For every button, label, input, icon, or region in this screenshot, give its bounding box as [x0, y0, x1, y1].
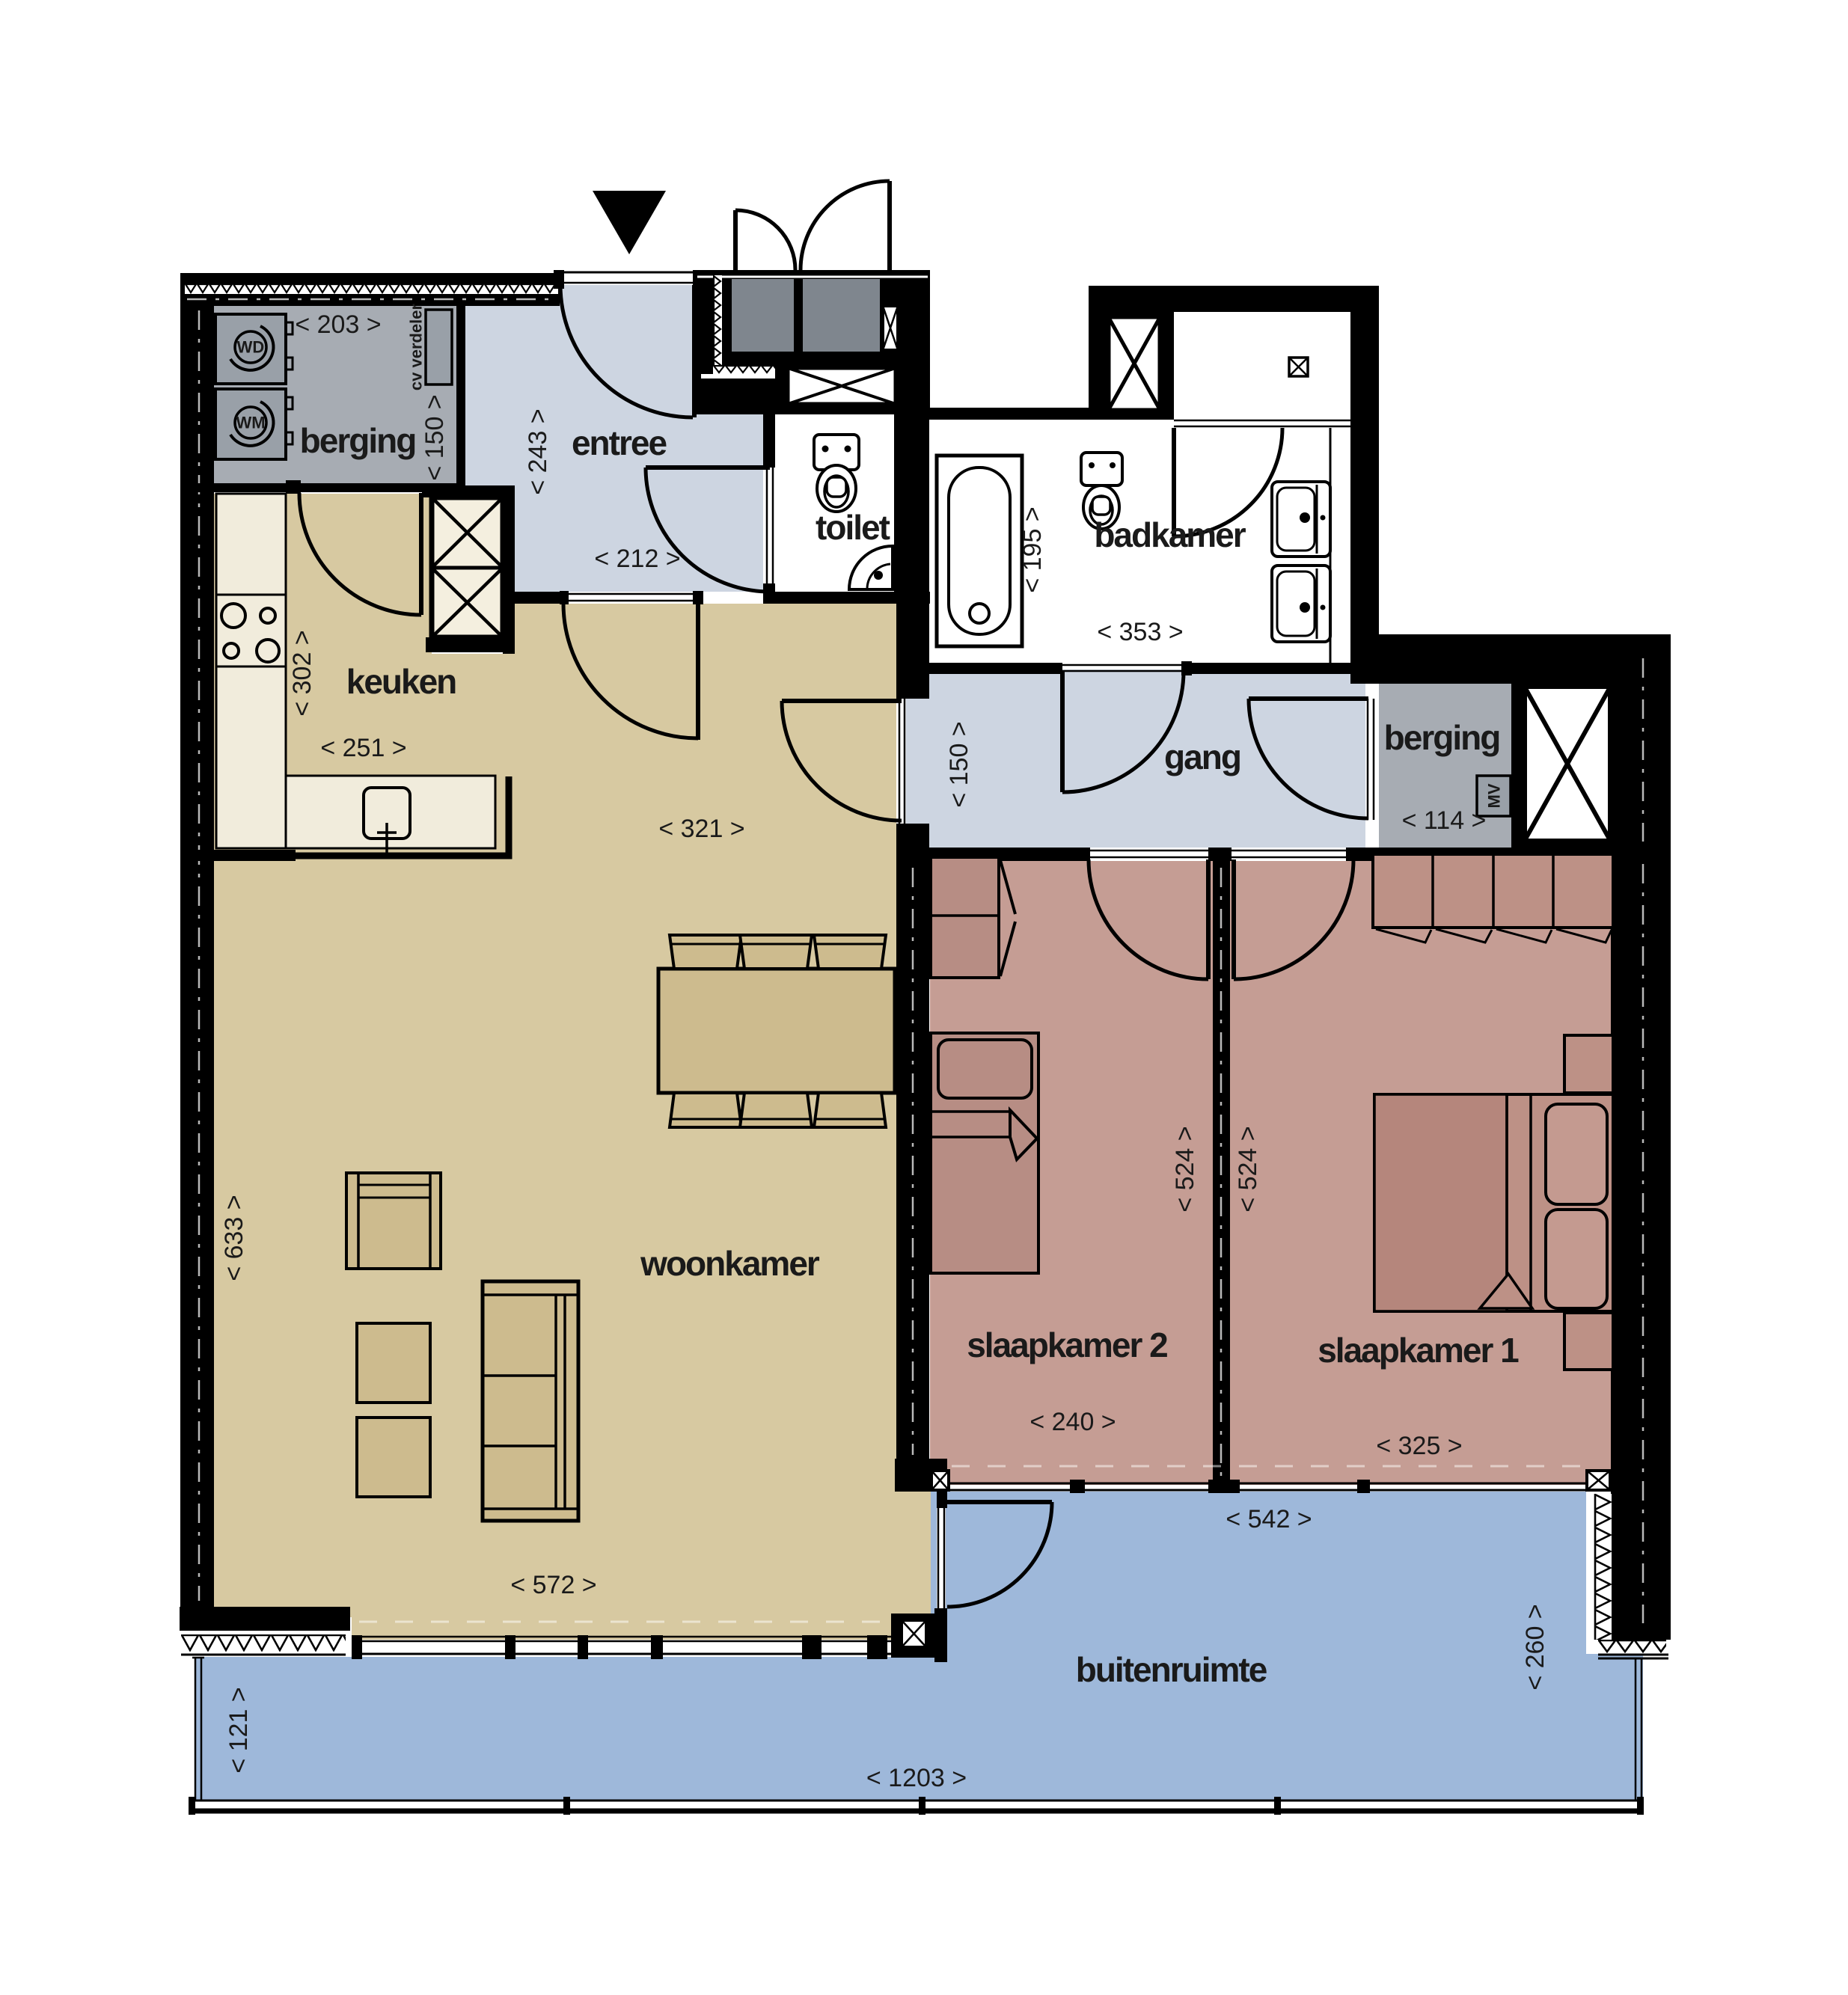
- svg-text:buitenruimte: buitenruimte: [1076, 1650, 1267, 1689]
- svg-text:< 203 >: < 203 >: [295, 310, 381, 339]
- svg-text:woonkamer: woonkamer: [640, 1244, 820, 1283]
- svg-text:entree: entree: [572, 423, 667, 462]
- svg-text:< 633 >: < 633 >: [220, 1195, 248, 1281]
- svg-text:< 195 >: < 195 >: [1018, 506, 1047, 592]
- svg-text:WD: WD: [237, 338, 265, 357]
- svg-text:berging: berging: [1384, 718, 1500, 757]
- svg-text:slaapkamer 2: slaapkamer 2: [967, 1326, 1167, 1364]
- svg-text:WM: WM: [236, 414, 265, 432]
- svg-text:< 321 >: < 321 >: [658, 815, 744, 843]
- svg-text:< 302 >: < 302 >: [288, 630, 316, 716]
- svg-text:< 353 >: < 353 >: [1097, 618, 1183, 646]
- svg-text:< 212 >: < 212 >: [594, 545, 680, 573]
- svg-text:< 572 >: < 572 >: [510, 1571, 596, 1599]
- svg-text:keuken: keuken: [346, 662, 456, 701]
- svg-text:slaapkamer 1: slaapkamer 1: [1318, 1331, 1519, 1370]
- svg-text:< 121 >: < 121 >: [224, 1687, 253, 1773]
- svg-text:gang: gang: [1164, 738, 1240, 776]
- svg-text:< 150 >: < 150 >: [945, 721, 973, 807]
- svg-text:toilet: toilet: [816, 508, 890, 547]
- svg-text:badkamer: badkamer: [1094, 515, 1246, 554]
- svg-text:berging: berging: [300, 421, 416, 460]
- svg-text:< 1203 >: < 1203 >: [866, 1764, 967, 1792]
- svg-text:< 542 >: < 542 >: [1226, 1505, 1312, 1533]
- svg-text:< 325 >: < 325 >: [1376, 1432, 1462, 1460]
- svg-text:< 240 >: < 240 >: [1029, 1408, 1116, 1436]
- svg-text:< 260 >: < 260 >: [1521, 1604, 1549, 1690]
- svg-text:< 524 >: < 524 >: [1171, 1126, 1199, 1212]
- svg-text:cv verdeler: cv verdeler: [407, 303, 426, 390]
- svg-text:< 524 >: < 524 >: [1234, 1126, 1262, 1212]
- svg-text:< 251 >: < 251 >: [320, 734, 406, 762]
- svg-text:MV: MV: [1485, 783, 1504, 808]
- svg-text:< 243 >: < 243 >: [524, 408, 552, 494]
- svg-text:< 150 >: < 150 >: [420, 394, 449, 480]
- svg-text:< 114 >: < 114 >: [1402, 806, 1487, 835]
